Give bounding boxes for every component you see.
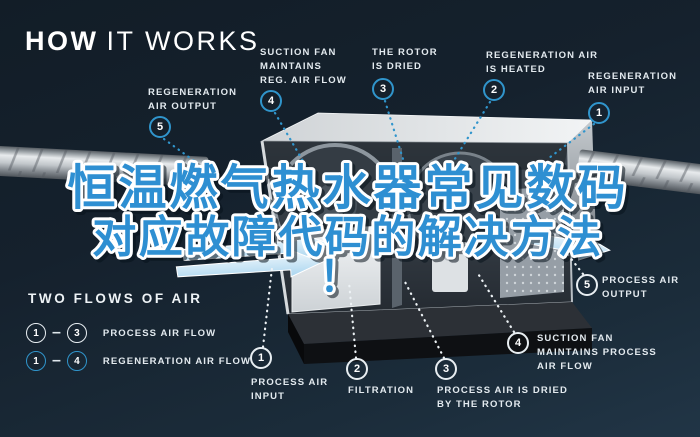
infographic-canvas: HOWIT WORKS REGENERATION AIR OUTPUT 5 SU… [0, 0, 700, 437]
headline-overlay: 恒温燃气热水器常见数码 对应故障代码的解决方法 ！ [0, 0, 700, 437]
headline-line1: 恒温燃气热水器常见数码 [67, 160, 628, 216]
headline-line3: ！ [319, 252, 361, 301]
